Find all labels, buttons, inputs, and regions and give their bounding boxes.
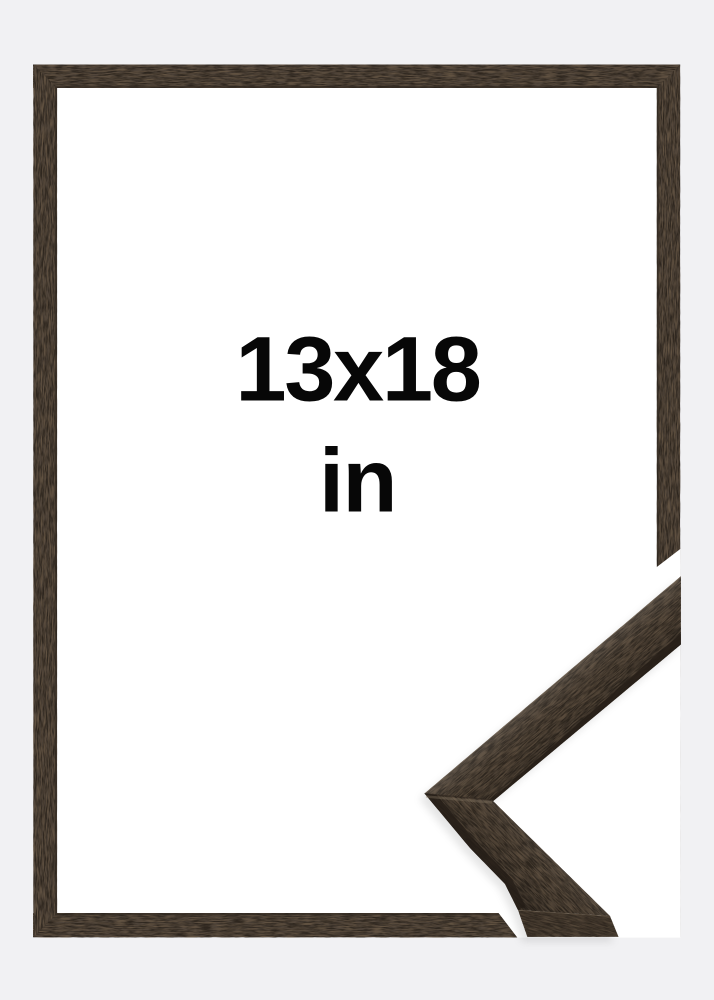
svg-text:13x18: 13x18 <box>235 318 479 420</box>
svg-text:in: in <box>319 432 396 532</box>
